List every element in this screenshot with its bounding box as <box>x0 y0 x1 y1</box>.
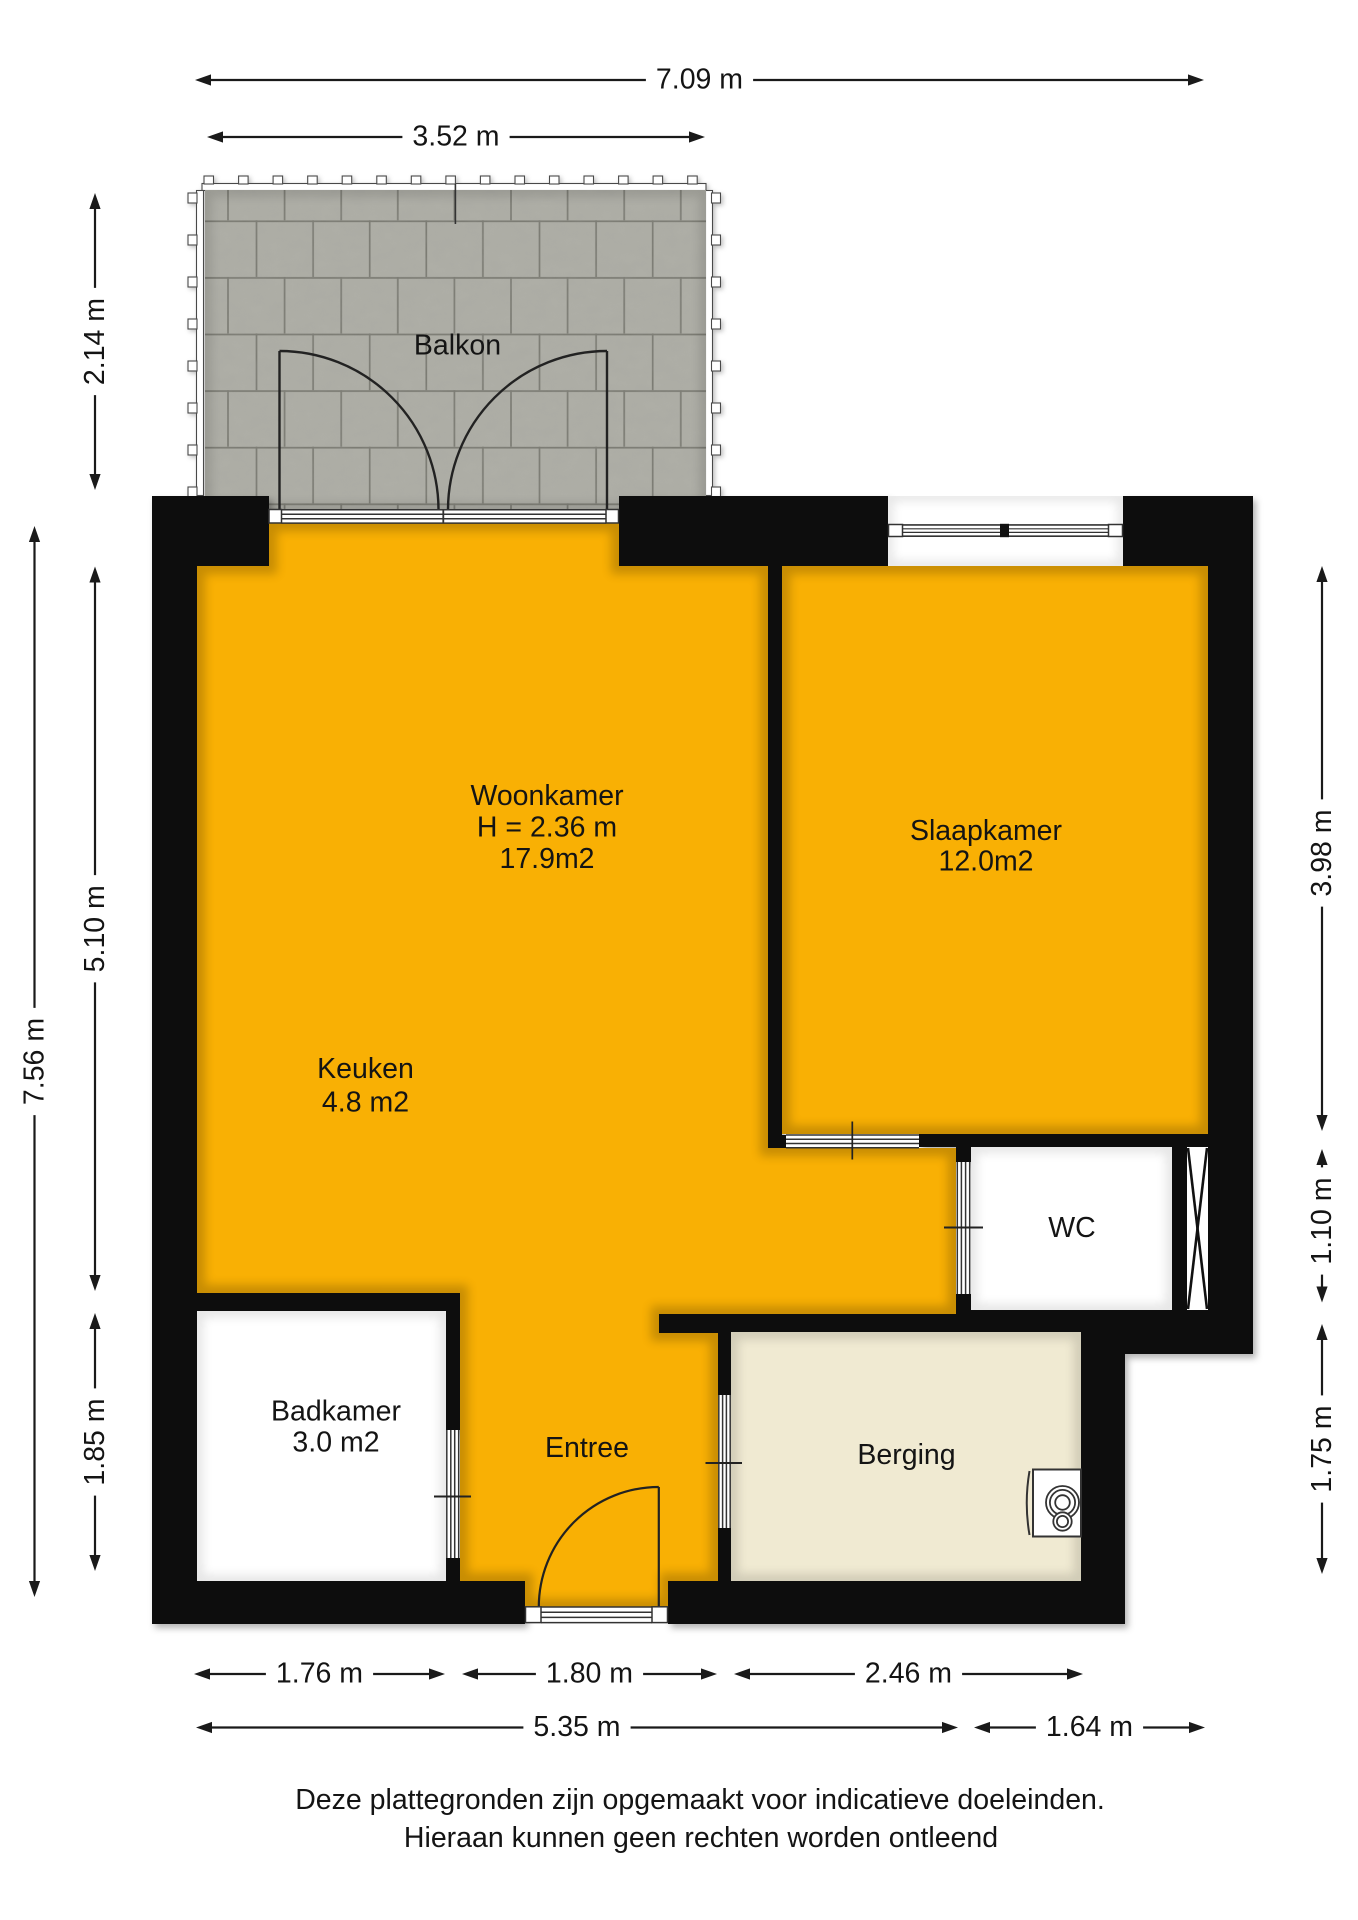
svg-text:H = 2.36 m: H = 2.36 m <box>477 812 617 844</box>
svg-text:Keuken: Keuken <box>317 1053 414 1085</box>
svg-text:Woonkamer: Woonkamer <box>470 780 624 812</box>
svg-text:1.85 m: 1.85 m <box>79 1398 111 1485</box>
svg-text:Entree: Entree <box>545 1432 629 1464</box>
svg-text:Deze plattegronden zijn opgema: Deze plattegronden zijn opgemaakt voor i… <box>295 1784 1105 1816</box>
svg-text:2.46 m: 2.46 m <box>865 1658 952 1690</box>
svg-text:2.14 m: 2.14 m <box>79 298 111 385</box>
svg-text:4.8 m2: 4.8 m2 <box>322 1087 409 1119</box>
svg-text:17.9m2: 17.9m2 <box>499 843 594 875</box>
svg-text:5.35 m: 5.35 m <box>533 1711 620 1743</box>
svg-text:1.76 m: 1.76 m <box>276 1658 363 1690</box>
svg-text:3.98 m: 3.98 m <box>1306 809 1338 896</box>
svg-text:1.64 m: 1.64 m <box>1046 1711 1133 1743</box>
svg-text:12.0m2: 12.0m2 <box>938 846 1033 878</box>
svg-text:Balkon: Balkon <box>414 330 501 362</box>
svg-text:Badkamer: Badkamer <box>271 1396 401 1428</box>
svg-text:3.0 m2: 3.0 m2 <box>292 1427 379 1459</box>
svg-text:Slaapkamer: Slaapkamer <box>910 815 1063 847</box>
svg-text:Berging: Berging <box>857 1439 955 1471</box>
svg-text:Hieraan kunnen geen rechten wo: Hieraan kunnen geen rechten worden ontle… <box>404 1822 998 1854</box>
svg-text:7.09 m: 7.09 m <box>656 64 743 96</box>
svg-text:5.10 m: 5.10 m <box>79 885 111 972</box>
svg-text:1.75 m: 1.75 m <box>1306 1405 1338 1492</box>
svg-text:3.52 m: 3.52 m <box>412 121 499 153</box>
svg-text:1.80 m: 1.80 m <box>546 1658 633 1690</box>
svg-text:1.10 m: 1.10 m <box>1306 1177 1338 1264</box>
svg-text:7.56 m: 7.56 m <box>19 1018 51 1105</box>
svg-text:WC: WC <box>1048 1212 1095 1244</box>
